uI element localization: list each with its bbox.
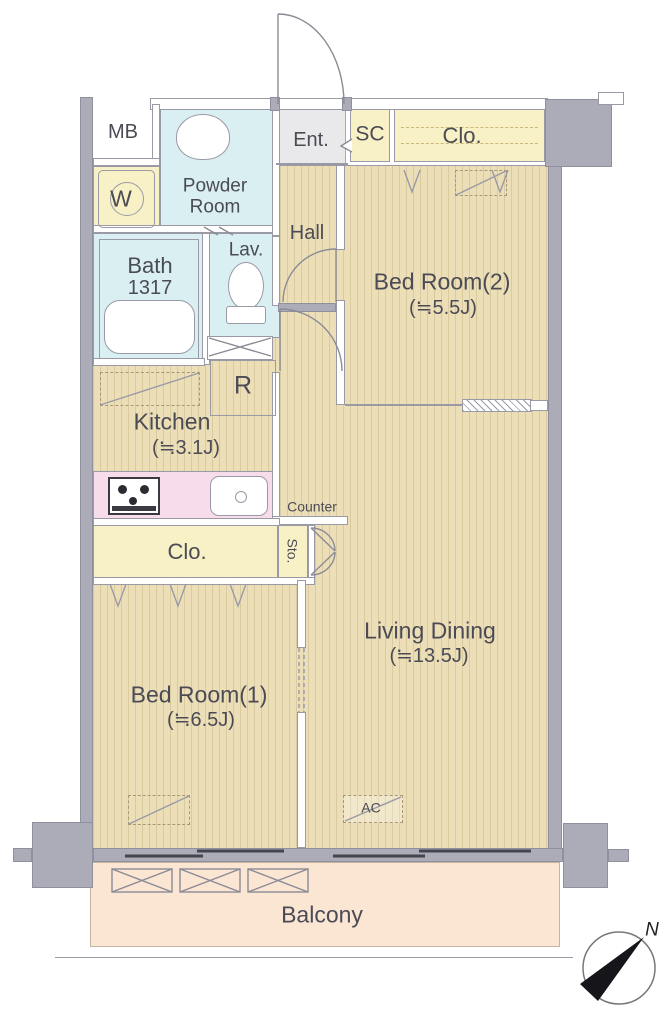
powder-room-label: Powder Room — [167, 176, 263, 217]
kitchen-size: (≒3.1J) — [152, 438, 220, 460]
floorplan-canvas: MB Powder Room W Ent. SC Clo. Bed Room(2… — [0, 0, 671, 1024]
hall-left-wall — [272, 236, 280, 306]
bottom-wall — [93, 848, 563, 862]
bottom-left-stub — [13, 848, 32, 862]
powder-right-wall — [272, 106, 280, 236]
bath-size: 1317 — [128, 278, 173, 300]
bedroom2-sliding-pocket — [462, 399, 532, 412]
bedroom1-size: (≒6.5J) — [167, 710, 235, 732]
partition-jamb — [530, 400, 548, 411]
bedroom1-label: Bed Room(1) — [131, 683, 268, 708]
bedroom2-living-partition — [345, 404, 465, 406]
fridge-label: R — [234, 373, 252, 400]
closet-mid-label: Clo. — [167, 540, 206, 564]
hall-mid-wall — [278, 303, 336, 312]
bedroom1-dashed-box — [128, 795, 190, 825]
stove-icon — [108, 477, 160, 515]
bottom-right-column — [563, 823, 608, 888]
left-outer-wall — [80, 97, 93, 857]
top-right-notch — [598, 92, 624, 105]
bedroom2-left-wall-upper — [336, 165, 345, 250]
bathtub-icon — [104, 300, 195, 354]
lavatory-label: Lav. — [229, 241, 264, 262]
mb-bottom-wall — [93, 158, 160, 166]
closet-mid-top-wall — [93, 518, 280, 526]
toilet-tank-icon — [226, 306, 266, 324]
ac-label: AC — [361, 800, 380, 815]
bottom-left-column — [32, 822, 93, 888]
compass-icon — [580, 932, 655, 1004]
entrance-door-arc — [278, 14, 344, 104]
kitchen-sink-icon — [210, 476, 268, 516]
closet-mid-bottom-wall — [93, 577, 315, 585]
vanity-sink-icon — [176, 114, 230, 160]
bedroom2-size: (≒5.5J) — [409, 298, 477, 320]
compass-north-label: N — [645, 921, 659, 942]
washer-label: W — [110, 187, 132, 212]
mb-label: MB — [108, 122, 138, 144]
counter-label: Counter — [287, 499, 337, 514]
living-dining-label: Living Dining — [364, 619, 496, 644]
bedroom2-closet-dashed-box — [455, 170, 507, 196]
bottom-right-stub — [608, 849, 629, 862]
crossed-storage-box-icon — [207, 336, 273, 360]
entrance-label: Ent. — [293, 130, 329, 152]
storage-right-wall — [308, 525, 315, 578]
kitchen-label: Kitchen — [134, 410, 211, 435]
storage-label: Sto. — [284, 539, 299, 564]
counter-wall — [272, 516, 348, 525]
shoe-closet-label: SC — [355, 124, 384, 147]
kitchen-cabinet-dashed-box — [100, 372, 200, 406]
hall-label: Hall — [290, 223, 324, 245]
balcony-label: Balcony — [281, 903, 363, 928]
balcony-outer-line — [55, 957, 573, 958]
bedroom2-label: Bed Room(2) — [374, 270, 511, 295]
bath-label: Bath — [127, 254, 172, 278]
right-outer-wall — [548, 160, 562, 860]
living-dining-size: (≒13.5J) — [389, 646, 468, 668]
top-right-column — [545, 99, 612, 167]
bedroom2-left-wall-lower — [336, 300, 345, 405]
bedroom1-right-wall-upper — [297, 580, 306, 648]
bath-bottom-wall — [93, 358, 205, 366]
entry-door-jamb-right — [342, 97, 352, 111]
bedroom1-right-wall-lower — [297, 712, 306, 848]
entry-door-jamb-left — [270, 97, 280, 111]
toilet-bowl-icon — [228, 262, 264, 310]
mb-right-wall — [152, 104, 160, 166]
closet-top-label: Clo. — [442, 124, 481, 148]
entrance-step-line — [276, 163, 348, 165]
